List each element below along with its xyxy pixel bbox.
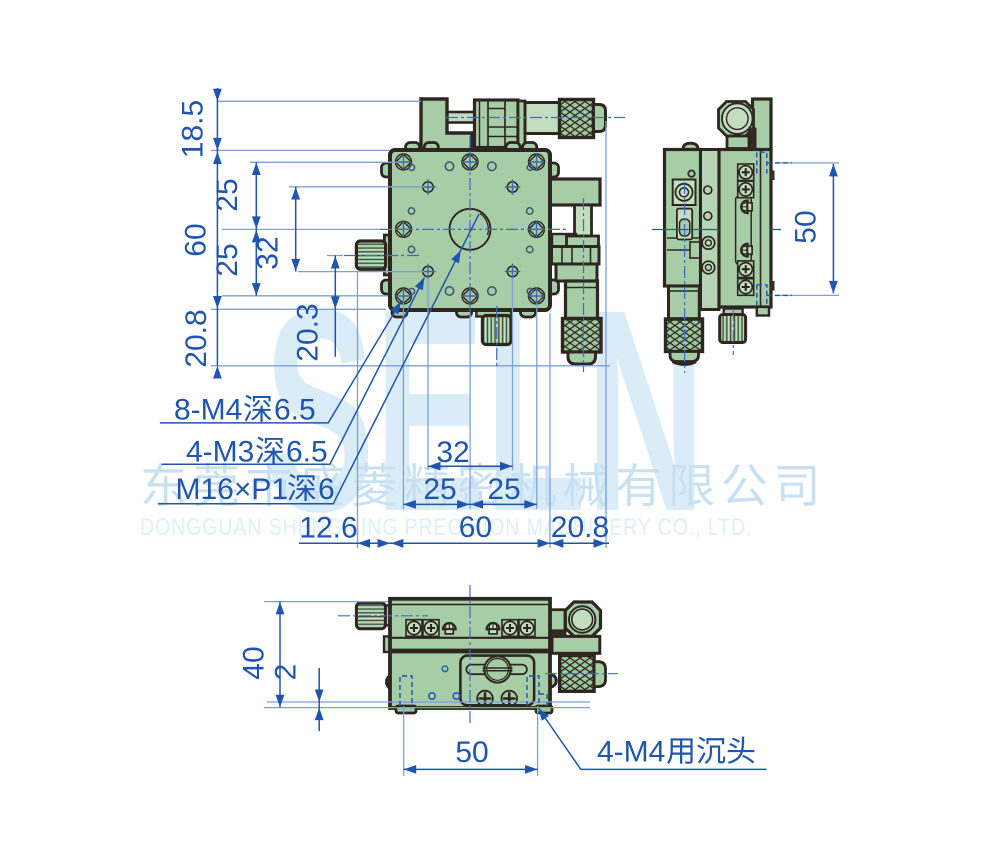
svg-text:DONGGUAN SHENG LING PRECISION: DONGGUAN SHENG LING PRECISION MACHINERY … [140,513,752,541]
svg-text:60: 60 [180,223,213,256]
svg-text:50: 50 [455,736,488,769]
svg-text:6: 6 [318,473,335,506]
svg-text:25: 25 [211,178,244,211]
svg-text:25: 25 [423,473,456,506]
svg-text:40: 40 [238,646,271,679]
svg-text:25: 25 [211,243,244,276]
svg-text:12.6: 12.6 [299,512,357,545]
svg-text:32: 32 [436,436,469,469]
svg-text:20.8: 20.8 [180,309,213,367]
svg-text:20.8: 20.8 [551,511,609,544]
svg-text:18.5: 18.5 [177,100,210,158]
svg-text:2: 2 [270,664,303,681]
svg-text:4-M4: 4-M4 [597,736,665,769]
svg-text:25: 25 [487,473,520,506]
svg-text:50: 50 [790,210,823,243]
svg-text:8-M4: 8-M4 [174,394,242,427]
svg-text:60: 60 [459,511,492,544]
svg-text:4-M3: 4-M3 [186,436,254,469]
svg-text:M16×P1: M16×P1 [176,473,289,506]
svg-text:6.5: 6.5 [274,394,316,427]
svg-text:6.5: 6.5 [286,436,328,469]
svg-text:32: 32 [252,236,285,269]
svg-text:20.3: 20.3 [292,303,325,361]
